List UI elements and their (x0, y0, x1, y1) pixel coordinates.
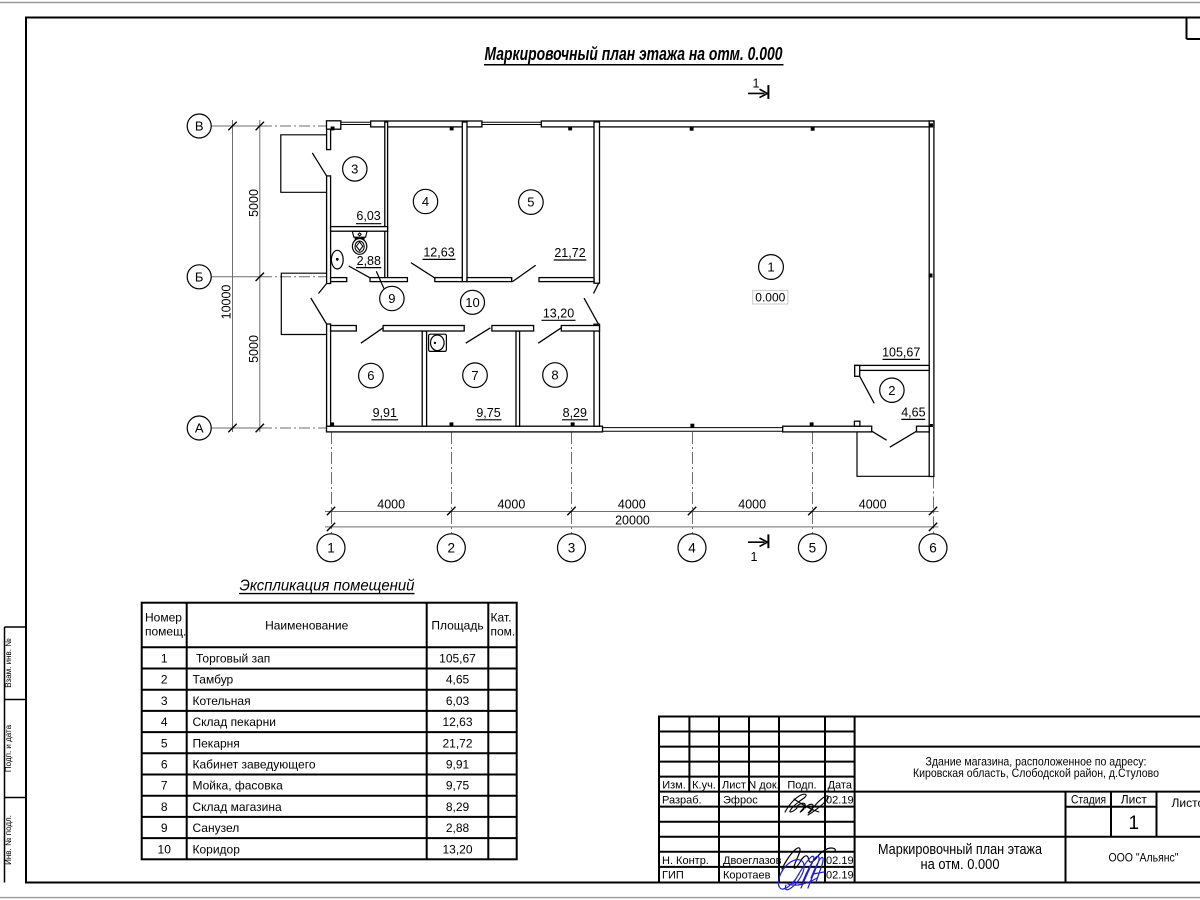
svg-text:8: 8 (551, 368, 558, 383)
svg-text:К.уч.: К.уч. (692, 780, 716, 792)
svg-text:Наименование: Наименование (265, 619, 349, 633)
svg-text:В: В (195, 119, 204, 134)
svg-text:Листов: Листов (1172, 796, 1200, 810)
svg-text:105,67: 105,67 (439, 652, 476, 666)
svg-text:Кат.: Кат. (491, 611, 512, 625)
svg-text:1: 1 (767, 260, 774, 275)
svg-text:9,91: 9,91 (446, 758, 470, 772)
svg-text:6: 6 (161, 758, 168, 772)
svg-text:4,65: 4,65 (446, 673, 470, 687)
svg-text:Изм.: Изм. (662, 780, 686, 792)
svg-text:7: 7 (161, 779, 168, 793)
svg-text:Разраб.: Разраб. (662, 795, 702, 807)
svg-text:Лист: Лист (722, 780, 746, 792)
svg-text:105,67: 105,67 (882, 346, 920, 360)
svg-text:Двоеглазов: Двоеглазов (723, 855, 782, 867)
svg-text:пом.: пом. (491, 625, 516, 639)
svg-text:4000: 4000 (377, 497, 405, 511)
svg-text:9,91: 9,91 (373, 406, 397, 420)
svg-text:21,72: 21,72 (554, 246, 585, 260)
svg-text:Стадия: Стадия (1071, 793, 1106, 807)
svg-text:6: 6 (929, 541, 937, 556)
svg-text:Кировская область, Слободской: Кировская область, Слободской район, д.С… (913, 766, 1159, 780)
svg-text:10: 10 (158, 842, 172, 856)
svg-text:5: 5 (809, 541, 817, 556)
svg-text:02.19: 02.19 (826, 795, 854, 807)
svg-text:2: 2 (448, 541, 456, 556)
svg-text:1: 1 (751, 550, 758, 564)
svg-text:9: 9 (161, 821, 168, 835)
svg-text:6: 6 (367, 368, 374, 383)
svg-text:1: 1 (753, 77, 760, 91)
svg-text:12,63: 12,63 (423, 246, 454, 260)
svg-text:5000: 5000 (247, 189, 261, 217)
svg-text:Коротаев: Коротаев (723, 870, 771, 882)
svg-text:3: 3 (161, 694, 168, 708)
svg-text:8,29: 8,29 (563, 406, 587, 420)
svg-text:Котельная: Котельная (193, 694, 251, 708)
svg-text:4000: 4000 (859, 497, 887, 511)
svg-text:Лист: Лист (1121, 793, 1148, 807)
svg-text:20000: 20000 (615, 514, 650, 528)
svg-text:10000: 10000 (220, 285, 234, 320)
svg-text:Склад пекарни: Склад пекарни (193, 715, 276, 729)
svg-text:Номер: Номер (145, 611, 182, 625)
svg-text:13,20: 13,20 (442, 842, 472, 856)
svg-text:ООО "Альянс": ООО "Альянс" (1109, 851, 1179, 865)
svg-text:Тамбур: Тамбур (193, 673, 234, 687)
svg-text:Пекарня: Пекарня (193, 736, 240, 750)
svg-text:7: 7 (471, 368, 478, 383)
svg-text:Маркировочный план этажа: Маркировочный план этажа (878, 842, 1043, 858)
svg-text:N док.: N док. (748, 780, 779, 792)
svg-text:Эфрос: Эфрос (723, 795, 758, 807)
svg-text:1: 1 (1129, 813, 1140, 834)
svg-text:ГИП: ГИП (662, 870, 684, 882)
svg-text:3: 3 (351, 162, 358, 177)
svg-text:Б: Б (195, 269, 204, 284)
svg-text:0.000: 0.000 (755, 290, 785, 304)
svg-text:Мойка, фасовка: Мойка, фасовка (193, 779, 284, 793)
svg-text:Площадь: Площадь (431, 619, 483, 633)
svg-text:Взам. инв. №: Взам. инв. № (4, 638, 13, 688)
svg-text:02.19: 02.19 (826, 855, 854, 867)
svg-text:4,65: 4,65 (901, 406, 925, 420)
svg-text:А: А (195, 421, 204, 436)
svg-text:помещ.: помещ. (145, 625, 186, 639)
svg-text:9,75: 9,75 (446, 779, 470, 793)
svg-text:13,20: 13,20 (543, 307, 574, 321)
svg-text:2,88: 2,88 (357, 254, 381, 268)
svg-text:9,75: 9,75 (476, 406, 500, 420)
svg-text:10: 10 (465, 295, 479, 310)
svg-text:Кабинет заведующего: Кабинет заведующего (193, 758, 316, 772)
svg-text:3: 3 (568, 541, 576, 556)
svg-text:2,88: 2,88 (446, 821, 470, 835)
svg-text:5000: 5000 (247, 335, 261, 363)
svg-text:Склад магазина: Склад магазина (193, 800, 282, 814)
svg-text:Торговый зап: Торговый зап (196, 652, 270, 666)
svg-text:12,63: 12,63 (442, 715, 472, 729)
svg-text:02.19: 02.19 (826, 870, 854, 882)
svg-text:Подп. и дата: Подп. и дата (4, 724, 13, 772)
svg-text:5: 5 (527, 195, 534, 210)
svg-text:4: 4 (688, 541, 696, 556)
svg-text:4000: 4000 (618, 497, 646, 511)
svg-text:8: 8 (161, 800, 168, 814)
svg-text:4: 4 (422, 194, 429, 209)
svg-text:Коридор: Коридор (193, 842, 241, 856)
svg-text:6,03: 6,03 (446, 694, 470, 708)
svg-text:2: 2 (161, 673, 168, 687)
svg-text:Маркировочный план этажа на от: Маркировочный план этажа на отм. 0.000 (485, 43, 784, 64)
svg-text:Инв. № подл.: Инв. № подл. (4, 815, 13, 865)
svg-text:8,29: 8,29 (446, 800, 470, 814)
svg-text:4000: 4000 (738, 497, 766, 511)
svg-text:Н. Контр.: Н. Контр. (662, 855, 709, 867)
svg-text:2: 2 (888, 383, 895, 398)
svg-text:Дата: Дата (828, 780, 853, 792)
svg-text:1: 1 (161, 652, 168, 666)
svg-text:4000: 4000 (497, 497, 525, 511)
svg-text:Подп.: Подп. (787, 780, 816, 792)
svg-text:Санузел: Санузел (193, 821, 240, 835)
svg-text:1: 1 (327, 541, 335, 556)
svg-text:Экспликация помещений: Экспликация помещений (240, 578, 415, 595)
svg-text:4: 4 (161, 715, 168, 729)
svg-text:21,72: 21,72 (442, 736, 472, 750)
svg-text:на отм. 0.000: на отм. 0.000 (921, 857, 1000, 873)
svg-text:6,03: 6,03 (356, 209, 380, 223)
svg-text:9: 9 (388, 291, 395, 306)
svg-text:5: 5 (161, 736, 168, 750)
